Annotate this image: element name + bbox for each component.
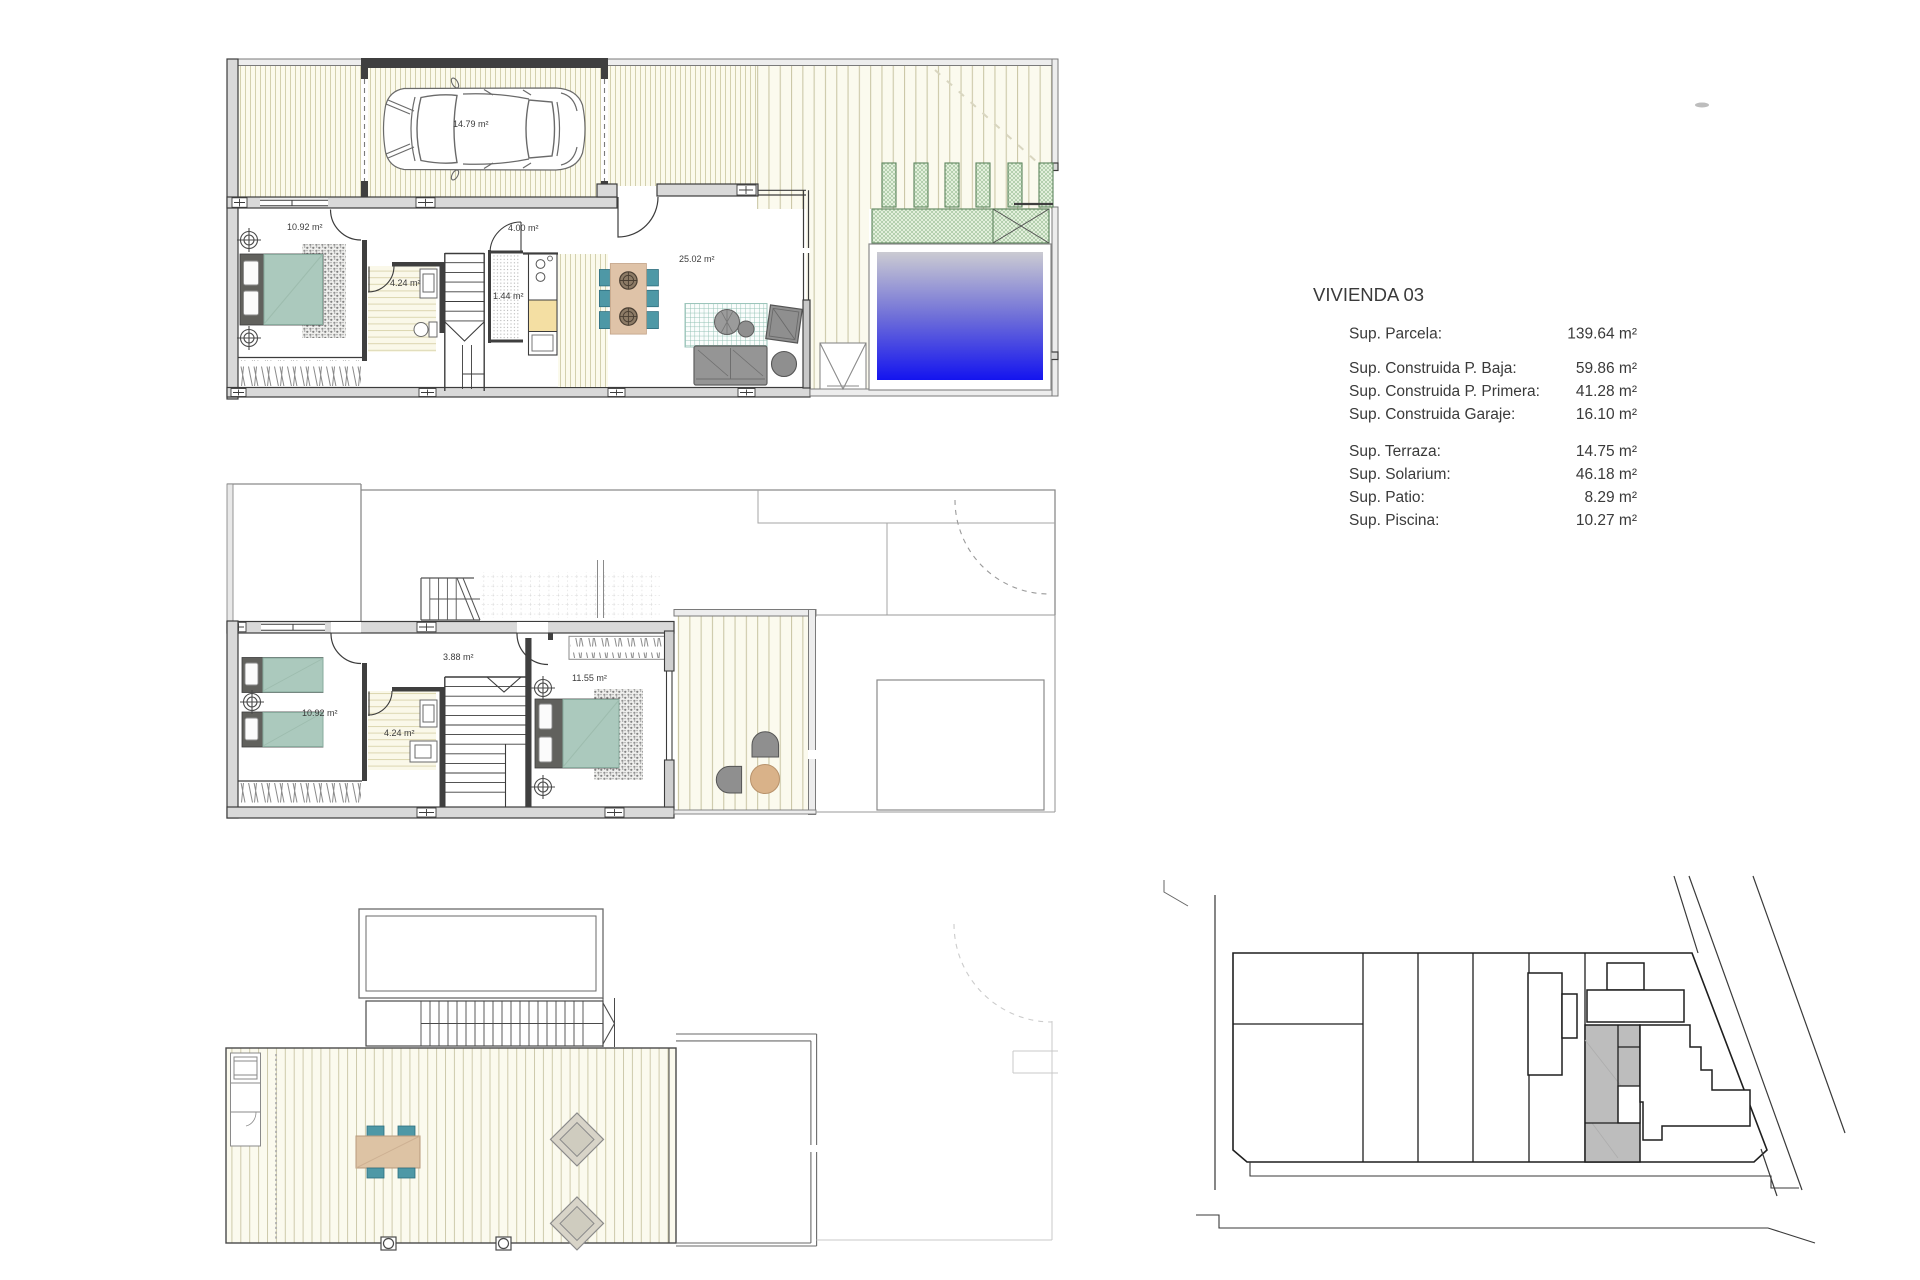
- svg-text:Sup. Piscina:: Sup. Piscina:: [1349, 512, 1439, 529]
- svg-text:14.75 m²: 14.75 m²: [1576, 443, 1637, 460]
- svg-text:16.10 m²: 16.10 m²: [1576, 406, 1637, 423]
- svg-text:4.00 m²: 4.00 m²: [508, 223, 539, 233]
- svg-text:Sup. Solarium:: Sup. Solarium:: [1349, 466, 1451, 483]
- svg-text:Sup. Terraza:: Sup. Terraza:: [1349, 443, 1441, 460]
- svg-text:59.86 m²: 59.86 m²: [1576, 360, 1637, 377]
- svg-text:139.64 m²: 139.64 m²: [1567, 326, 1637, 343]
- svg-text:10.27 m²: 10.27 m²: [1576, 512, 1637, 529]
- svg-text:Sup. Parcela:: Sup. Parcela:: [1349, 326, 1442, 343]
- svg-text:8.29 m²: 8.29 m²: [1584, 489, 1637, 506]
- svg-text:Sup. Construida P. Baja:: Sup. Construida P. Baja:: [1349, 360, 1517, 377]
- svg-text:41.28 m²: 41.28 m²: [1576, 383, 1637, 400]
- svg-text:11.55 m²: 11.55 m²: [572, 673, 607, 683]
- svg-text:10.92 m²: 10.92 m²: [302, 708, 338, 718]
- svg-text:4.24 m²: 4.24 m²: [390, 278, 421, 288]
- svg-text:4.24 m²: 4.24 m²: [384, 728, 415, 738]
- svg-text:Sup. Patio:: Sup. Patio:: [1349, 489, 1425, 506]
- svg-text:10.92 m²: 10.92 m²: [287, 222, 323, 232]
- svg-text:Sup. Construida Garaje:: Sup. Construida Garaje:: [1349, 406, 1515, 423]
- svg-text:46.18 m²: 46.18 m²: [1576, 466, 1637, 483]
- svg-text:14.79 m²: 14.79 m²: [453, 119, 489, 129]
- svg-text:3.88 m²: 3.88 m²: [443, 652, 474, 662]
- svg-text:25.02 m²: 25.02 m²: [679, 254, 715, 264]
- svg-text:VIVIENDA 03: VIVIENDA 03: [1313, 284, 1424, 305]
- svg-text:Sup. Construida P. Primera:: Sup. Construida P. Primera:: [1349, 383, 1540, 400]
- svg-text:1.44 m²: 1.44 m²: [493, 291, 524, 301]
